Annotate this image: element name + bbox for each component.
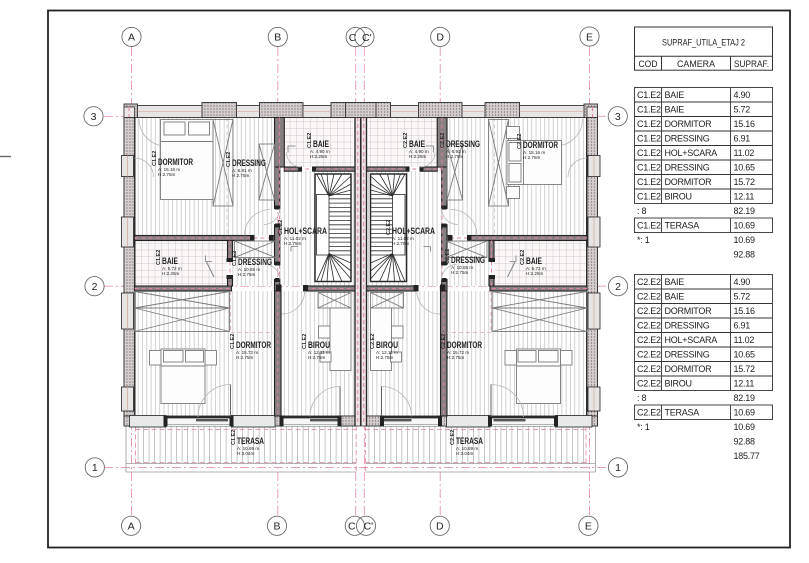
svg-text:BIROU: BIROU bbox=[665, 379, 692, 389]
svg-text:DORMITOR: DORMITOR bbox=[665, 119, 713, 129]
svg-text:H:2.75m: H:2.75m bbox=[232, 173, 250, 178]
svg-text:10.69: 10.69 bbox=[734, 408, 756, 418]
svg-text:BAIE: BAIE bbox=[409, 139, 425, 149]
svg-text:HOL+SCARA: HOL+SCARA bbox=[284, 226, 327, 236]
svg-text:1: 1 bbox=[615, 462, 621, 474]
svg-text:82.19: 82.19 bbox=[734, 393, 756, 403]
svg-text:C1.E2: C1.E2 bbox=[307, 133, 313, 148]
svg-text:DORMITOR: DORMITOR bbox=[665, 177, 713, 187]
svg-text:C2.E2: C2.E2 bbox=[441, 334, 447, 349]
svg-text:3: 3 bbox=[615, 111, 621, 123]
svg-text:C1.E2: C1.E2 bbox=[637, 221, 661, 231]
svg-text:3: 3 bbox=[91, 111, 97, 123]
svg-text:C2.E2: C2.E2 bbox=[637, 364, 661, 374]
svg-text:H:2.25m: H:2.25m bbox=[162, 271, 180, 276]
svg-text:92.88: 92.88 bbox=[734, 250, 756, 260]
svg-text:: 8: : 8 bbox=[637, 206, 647, 216]
svg-text:DRESSING: DRESSING bbox=[665, 350, 710, 360]
svg-text:H:2.75m: H:2.75m bbox=[392, 241, 410, 246]
svg-text:C1.E2: C1.E2 bbox=[637, 163, 661, 173]
svg-text:H:2.75m: H:2.75m bbox=[158, 172, 176, 177]
svg-text:10.69: 10.69 bbox=[734, 422, 756, 432]
svg-text:C2.E2: C2.E2 bbox=[386, 220, 392, 235]
svg-text:DRESSING: DRESSING bbox=[665, 163, 710, 173]
svg-text:DORMITOR: DORMITOR bbox=[158, 157, 193, 167]
svg-text:C1.E2: C1.E2 bbox=[278, 220, 284, 235]
svg-text:C2.E2: C2.E2 bbox=[637, 306, 661, 316]
svg-text:*: 1: *: 1 bbox=[637, 235, 650, 245]
svg-text:10.69: 10.69 bbox=[734, 221, 756, 231]
svg-text:C2.E2: C2.E2 bbox=[403, 133, 409, 148]
svg-text:BIROU: BIROU bbox=[376, 340, 398, 350]
svg-text:C2.E2: C2.E2 bbox=[637, 321, 661, 331]
svg-text:DORMITOR: DORMITOR bbox=[665, 364, 713, 374]
svg-text:11.02: 11.02 bbox=[734, 335, 755, 345]
svg-text:DORMITOR: DORMITOR bbox=[523, 140, 558, 150]
svg-text:SUPRAF_UTILA_ETAJ 2: SUPRAF_UTILA_ETAJ 2 bbox=[662, 38, 745, 49]
svg-text:DRESSING: DRESSING bbox=[665, 134, 710, 144]
svg-text:H:2.75m: H:2.75m bbox=[376, 355, 394, 360]
svg-text:C2.E2: C2.E2 bbox=[520, 250, 526, 265]
svg-text:E: E bbox=[586, 31, 593, 43]
svg-text:15.72: 15.72 bbox=[734, 364, 756, 374]
svg-text:10.65: 10.65 bbox=[734, 350, 756, 360]
svg-text:6.91: 6.91 bbox=[734, 321, 751, 331]
svg-text:10.65: 10.65 bbox=[734, 163, 756, 173]
svg-text:C1.E2: C1.E2 bbox=[152, 151, 158, 166]
svg-text:*: 1: *: 1 bbox=[637, 422, 650, 432]
svg-text:DRESSING: DRESSING bbox=[451, 255, 485, 265]
svg-text:H:2.75m: H:2.75m bbox=[451, 270, 469, 275]
svg-text:C2.E2: C2.E2 bbox=[517, 134, 523, 149]
svg-text:H:3.04m: H:3.04m bbox=[237, 451, 255, 456]
svg-text:C1.E2: C1.E2 bbox=[637, 192, 661, 202]
svg-text:BAIE: BAIE bbox=[665, 292, 685, 302]
svg-text:C1.E2: C1.E2 bbox=[231, 430, 237, 445]
svg-text:C': C' bbox=[362, 32, 372, 44]
svg-text:B: B bbox=[274, 32, 281, 44]
svg-text:HOL+SCARA: HOL+SCARA bbox=[665, 148, 718, 158]
svg-text:C1.E2: C1.E2 bbox=[637, 134, 661, 144]
svg-text:TERASA: TERASA bbox=[456, 436, 483, 446]
svg-text:HOL+SCARA: HOL+SCARA bbox=[665, 335, 718, 345]
svg-text:DRESSING: DRESSING bbox=[232, 158, 266, 168]
svg-text:C2.E2: C2.E2 bbox=[370, 334, 376, 349]
svg-text:H:2.75m: H:2.75m bbox=[523, 155, 541, 160]
svg-text:82.19: 82.19 bbox=[734, 206, 756, 216]
svg-text:15.16: 15.16 bbox=[734, 119, 756, 129]
svg-text:C2.E2: C2.E2 bbox=[637, 350, 661, 360]
svg-text:10.69: 10.69 bbox=[734, 235, 756, 245]
svg-text:A: A bbox=[128, 521, 135, 533]
svg-text:C2.E2: C2.E2 bbox=[637, 335, 661, 345]
svg-text:DRESSING: DRESSING bbox=[665, 321, 710, 331]
svg-text:HOL+SCARA: HOL+SCARA bbox=[392, 226, 435, 236]
svg-text:C2.E2: C2.E2 bbox=[637, 408, 661, 418]
svg-text:BAIE: BAIE bbox=[313, 139, 329, 149]
svg-text:15.72: 15.72 bbox=[734, 177, 756, 187]
svg-text:H:3.04m: H:3.04m bbox=[456, 451, 474, 456]
svg-text:TERASA: TERASA bbox=[665, 408, 700, 418]
svg-text:TERASA: TERASA bbox=[237, 436, 264, 446]
svg-text:DORMITOR: DORMITOR bbox=[236, 340, 271, 350]
svg-text:C2.E2: C2.E2 bbox=[637, 379, 661, 389]
svg-text:C2.E2: C2.E2 bbox=[637, 292, 661, 302]
svg-text:12.11: 12.11 bbox=[734, 192, 755, 202]
svg-text:1: 1 bbox=[92, 462, 98, 474]
svg-text:SUPRAF.: SUPRAF. bbox=[734, 59, 769, 70]
svg-text:H:2.75m: H:2.75m bbox=[308, 355, 326, 360]
svg-text:C1.E2: C1.E2 bbox=[230, 334, 236, 349]
svg-text:BIROU: BIROU bbox=[308, 340, 330, 350]
svg-text:H:2.75m: H:2.75m bbox=[447, 355, 465, 360]
svg-text:C2.E2: C2.E2 bbox=[637, 277, 661, 287]
svg-text:TERASA: TERASA bbox=[665, 221, 700, 231]
svg-text:C1.E2: C1.E2 bbox=[302, 334, 308, 349]
svg-text:H:2.75m: H:2.75m bbox=[284, 241, 302, 246]
svg-text:BIROU: BIROU bbox=[665, 192, 692, 202]
svg-text:C2.E2: C2.E2 bbox=[445, 249, 451, 264]
svg-text:BAIE: BAIE bbox=[162, 256, 178, 266]
svg-text:H:2.25m: H:2.25m bbox=[310, 154, 328, 159]
svg-text:4.90: 4.90 bbox=[734, 277, 751, 287]
svg-text:H:2.75m: H:2.75m bbox=[236, 355, 254, 360]
svg-text:C1.E2: C1.E2 bbox=[232, 251, 238, 266]
svg-text:D: D bbox=[436, 521, 444, 533]
svg-text:15.16: 15.16 bbox=[734, 306, 756, 316]
svg-text:CAMERA: CAMERA bbox=[677, 59, 716, 70]
svg-text:C2.E2: C2.E2 bbox=[450, 430, 456, 445]
svg-text:COD: COD bbox=[639, 59, 658, 70]
svg-text:C1.E2: C1.E2 bbox=[226, 152, 232, 167]
svg-text:D: D bbox=[436, 32, 444, 44]
svg-text:C1.E2: C1.E2 bbox=[637, 177, 661, 187]
svg-text:: 8: : 8 bbox=[637, 393, 647, 403]
svg-text:DORMITOR: DORMITOR bbox=[665, 306, 713, 316]
svg-text:DRESSING: DRESSING bbox=[238, 257, 272, 267]
svg-text:H:2.25m: H:2.25m bbox=[409, 154, 427, 159]
svg-text:C1.E2: C1.E2 bbox=[637, 119, 661, 129]
svg-text:BAIE: BAIE bbox=[526, 256, 542, 266]
svg-text:B: B bbox=[273, 521, 280, 533]
svg-text:C1.E2: C1.E2 bbox=[637, 148, 661, 158]
svg-text:2: 2 bbox=[92, 281, 98, 293]
svg-text:C1.E2: C1.E2 bbox=[637, 90, 661, 100]
svg-text:E: E bbox=[585, 521, 592, 533]
svg-text:185.77: 185.77 bbox=[734, 451, 760, 461]
svg-text:DORMITOR: DORMITOR bbox=[447, 340, 482, 350]
svg-text:5.72: 5.72 bbox=[734, 292, 751, 302]
svg-text:BAIE: BAIE bbox=[665, 90, 685, 100]
svg-text:C': C' bbox=[364, 521, 374, 533]
svg-text:92.88: 92.88 bbox=[734, 437, 756, 447]
svg-text:A: A bbox=[128, 32, 135, 44]
svg-text:C: C bbox=[348, 521, 356, 533]
svg-text:4.90: 4.90 bbox=[734, 90, 751, 100]
svg-text:C1.E2: C1.E2 bbox=[637, 105, 661, 115]
svg-text:H:2.75m: H:2.75m bbox=[446, 154, 464, 159]
svg-text:C1.E2: C1.E2 bbox=[156, 250, 162, 265]
svg-text:BAIE: BAIE bbox=[665, 105, 685, 115]
svg-text:6.91: 6.91 bbox=[734, 134, 751, 144]
svg-text:H:2.25m: H:2.25m bbox=[526, 271, 544, 276]
svg-text:C: C bbox=[349, 32, 357, 44]
svg-text:2: 2 bbox=[615, 281, 621, 293]
svg-text:BAIE: BAIE bbox=[665, 277, 685, 287]
svg-text:12.11: 12.11 bbox=[734, 379, 755, 389]
svg-text:DRESSING: DRESSING bbox=[446, 139, 480, 149]
svg-text:H:2.75m: H:2.75m bbox=[238, 272, 256, 277]
svg-text:C2.E2: C2.E2 bbox=[440, 133, 446, 148]
svg-text:5.72: 5.72 bbox=[734, 105, 751, 115]
svg-text:11.02: 11.02 bbox=[734, 148, 755, 158]
